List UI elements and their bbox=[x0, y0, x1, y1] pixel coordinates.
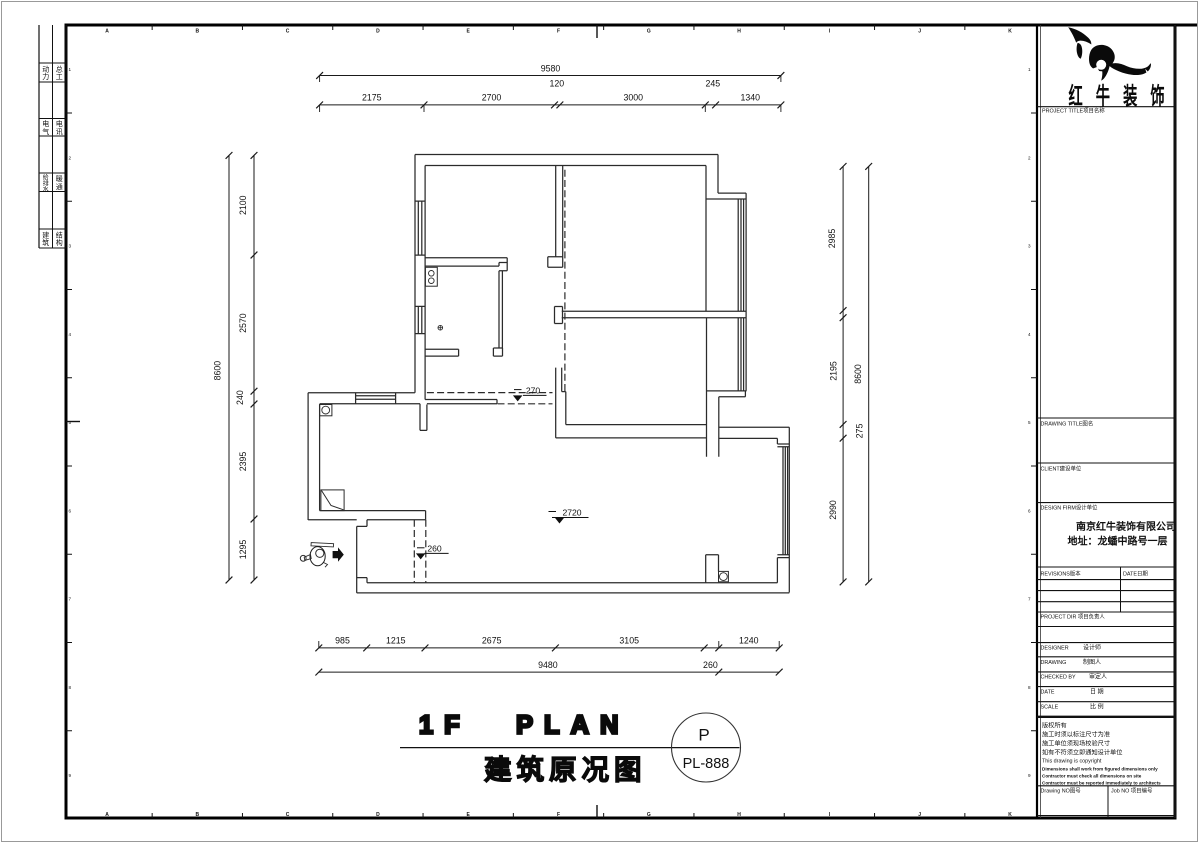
svg-text:6: 6 bbox=[1028, 508, 1031, 513]
svg-text:4: 4 bbox=[1028, 332, 1031, 337]
svg-text:电: 电 bbox=[56, 119, 63, 128]
svg-text:H: H bbox=[737, 29, 741, 35]
svg-text:电: 电 bbox=[42, 119, 49, 128]
svg-text:270: 270 bbox=[526, 385, 541, 395]
svg-text:8: 8 bbox=[69, 685, 72, 690]
svg-text:C: C bbox=[286, 29, 290, 35]
svg-text:CLIENT建设单位: CLIENT建设单位 bbox=[1041, 465, 1082, 473]
svg-text:制图人: 制图人 bbox=[1083, 658, 1101, 666]
svg-text:DRAWING: DRAWING bbox=[1041, 660, 1067, 666]
svg-text:H: H bbox=[737, 812, 741, 818]
svg-text:DATE: DATE bbox=[1041, 690, 1055, 696]
svg-text:1295: 1295 bbox=[238, 540, 248, 560]
svg-text:J: J bbox=[918, 812, 921, 818]
svg-text:DESIGNER: DESIGNER bbox=[1041, 646, 1069, 652]
svg-text:筑: 筑 bbox=[42, 238, 49, 247]
svg-text:气: 气 bbox=[42, 127, 49, 136]
svg-text:D: D bbox=[376, 29, 380, 35]
svg-text:2570: 2570 bbox=[238, 313, 248, 333]
svg-text:CHECKED BY: CHECKED BY bbox=[1041, 675, 1076, 681]
svg-text:1240: 1240 bbox=[739, 636, 759, 646]
svg-text:地址：龙蟠中路号一层: 地址：龙蟠中路号一层 bbox=[1068, 535, 1168, 548]
svg-text:PROJECT TITLE项目名称: PROJECT TITLE项目名称 bbox=[1042, 106, 1105, 114]
svg-text:3: 3 bbox=[69, 244, 72, 249]
svg-text:260: 260 bbox=[427, 543, 442, 553]
svg-text:9580: 9580 bbox=[541, 63, 561, 73]
svg-text:9: 9 bbox=[69, 773, 72, 778]
svg-text:4: 4 bbox=[69, 332, 72, 337]
svg-text:讯: 讯 bbox=[56, 128, 63, 136]
svg-text:8: 8 bbox=[1028, 685, 1031, 690]
svg-text:5: 5 bbox=[1028, 420, 1031, 425]
svg-text:排: 排 bbox=[43, 179, 49, 187]
svg-text:3: 3 bbox=[1028, 244, 1031, 249]
svg-text:P: P bbox=[698, 726, 709, 745]
svg-text:动: 动 bbox=[42, 64, 49, 73]
svg-text:9480: 9480 bbox=[538, 660, 558, 670]
svg-text:7: 7 bbox=[69, 597, 72, 602]
svg-text:红牛装饰: 红牛装饰 bbox=[1069, 82, 1178, 110]
svg-text:245: 245 bbox=[705, 79, 720, 89]
svg-text:2985: 2985 bbox=[827, 229, 837, 249]
svg-text:D: D bbox=[376, 812, 380, 818]
svg-text:PROJECT DIR 项目负责人: PROJECT DIR 项目负责人 bbox=[1041, 613, 1106, 621]
svg-text:施工单位须现场校验尺寸: 施工单位须现场校验尺寸 bbox=[1042, 740, 1110, 748]
svg-text:985: 985 bbox=[335, 636, 350, 646]
svg-text:120: 120 bbox=[549, 79, 564, 89]
svg-text:2: 2 bbox=[69, 155, 72, 160]
svg-text:Job NO 项目编号: Job NO 项目编号 bbox=[1111, 787, 1153, 795]
svg-text:水: 水 bbox=[43, 185, 49, 193]
svg-text:5: 5 bbox=[69, 420, 72, 425]
svg-text:1340: 1340 bbox=[741, 93, 761, 103]
svg-text:1: 1 bbox=[1028, 67, 1031, 72]
svg-text:9: 9 bbox=[1028, 773, 1031, 778]
svg-text:Dimensions shall work from fig: Dimensions shall work from figured dimen… bbox=[1042, 767, 1158, 772]
svg-text:This drawing is copyright: This drawing is copyright bbox=[1042, 759, 1102, 765]
svg-text:日 期: 日 期 bbox=[1090, 688, 1104, 696]
svg-text:工: 工 bbox=[56, 74, 63, 81]
svg-text:SCALE: SCALE bbox=[1041, 705, 1059, 711]
svg-text:K: K bbox=[1008, 29, 1012, 35]
svg-text:K: K bbox=[1008, 812, 1012, 818]
svg-text:PLAN: PLAN bbox=[516, 712, 629, 740]
svg-text:Contractor must be reported im: Contractor must be reported immediately … bbox=[1042, 781, 1161, 786]
svg-text:如有不符须立即通知设计单位: 如有不符须立即通知设计单位 bbox=[1042, 749, 1122, 757]
svg-text:给: 给 bbox=[43, 174, 49, 182]
svg-text:8600: 8600 bbox=[213, 361, 223, 381]
svg-text:暖: 暖 bbox=[56, 175, 63, 183]
svg-text:240: 240 bbox=[235, 390, 245, 405]
svg-text:8600: 8600 bbox=[853, 364, 863, 384]
svg-text:2195: 2195 bbox=[829, 361, 839, 381]
svg-text:6: 6 bbox=[69, 508, 72, 513]
svg-text:DESIGN FIRM设计单位: DESIGN FIRM设计单位 bbox=[1041, 504, 1099, 512]
svg-text:建筑原况图: 建筑原况图 bbox=[484, 754, 647, 785]
svg-text:3000: 3000 bbox=[624, 93, 644, 103]
svg-text:2100: 2100 bbox=[238, 195, 248, 215]
svg-text:A: A bbox=[105, 29, 109, 35]
svg-text:设计师: 设计师 bbox=[1083, 644, 1101, 652]
svg-text:B: B bbox=[195, 812, 199, 818]
svg-text:总: 总 bbox=[56, 64, 63, 73]
svg-text:G: G bbox=[647, 29, 651, 35]
svg-text:建: 建 bbox=[42, 230, 49, 239]
svg-text:PL-888: PL-888 bbox=[683, 756, 730, 772]
svg-text:通: 通 bbox=[56, 182, 63, 191]
svg-text:2990: 2990 bbox=[828, 500, 838, 520]
svg-text:7: 7 bbox=[1028, 597, 1031, 602]
svg-text:1: 1 bbox=[69, 67, 72, 72]
svg-text:版权所有: 版权所有 bbox=[1042, 722, 1067, 730]
svg-text:275: 275 bbox=[855, 424, 865, 439]
svg-text:C: C bbox=[286, 812, 290, 818]
svg-text:2675: 2675 bbox=[482, 636, 502, 646]
svg-text:2720: 2720 bbox=[562, 507, 581, 517]
svg-text:DATE日期: DATE日期 bbox=[1123, 570, 1148, 577]
svg-text:REVISIONS版本: REVISIONS版本 bbox=[1041, 569, 1082, 577]
svg-text:2395: 2395 bbox=[238, 452, 248, 472]
svg-text:F: F bbox=[557, 29, 560, 35]
svg-text:构: 构 bbox=[56, 238, 63, 247]
svg-text:2700: 2700 bbox=[482, 93, 502, 103]
svg-text:Contractor must check all dime: Contractor must check all dimensions on … bbox=[1042, 774, 1142, 779]
svg-text:260: 260 bbox=[703, 660, 718, 670]
svg-text:2: 2 bbox=[1028, 155, 1031, 160]
svg-text:J: J bbox=[918, 29, 921, 35]
svg-text:G: G bbox=[647, 812, 651, 818]
svg-text:F: F bbox=[557, 812, 560, 818]
svg-text:结: 结 bbox=[56, 230, 63, 239]
svg-text:2175: 2175 bbox=[362, 93, 382, 103]
svg-text:Drawing NO图号: Drawing NO图号 bbox=[1041, 787, 1082, 795]
svg-text:DRAWING TITLE图名: DRAWING TITLE图名 bbox=[1041, 420, 1094, 428]
svg-text:力: 力 bbox=[42, 72, 49, 81]
svg-text:施工时须以标注尺寸为准: 施工时须以标注尺寸为准 bbox=[1042, 731, 1110, 739]
svg-text:3105: 3105 bbox=[619, 636, 639, 646]
svg-text:审定人: 审定人 bbox=[1089, 673, 1107, 681]
svg-text:南京红牛装饰有限公司: 南京红牛装饰有限公司 bbox=[1076, 520, 1176, 533]
svg-text:B: B bbox=[195, 29, 199, 35]
svg-text:1F: 1F bbox=[419, 712, 471, 740]
svg-text:1215: 1215 bbox=[386, 636, 406, 646]
svg-text:比 例: 比 例 bbox=[1090, 703, 1104, 711]
svg-text:A: A bbox=[105, 812, 109, 818]
